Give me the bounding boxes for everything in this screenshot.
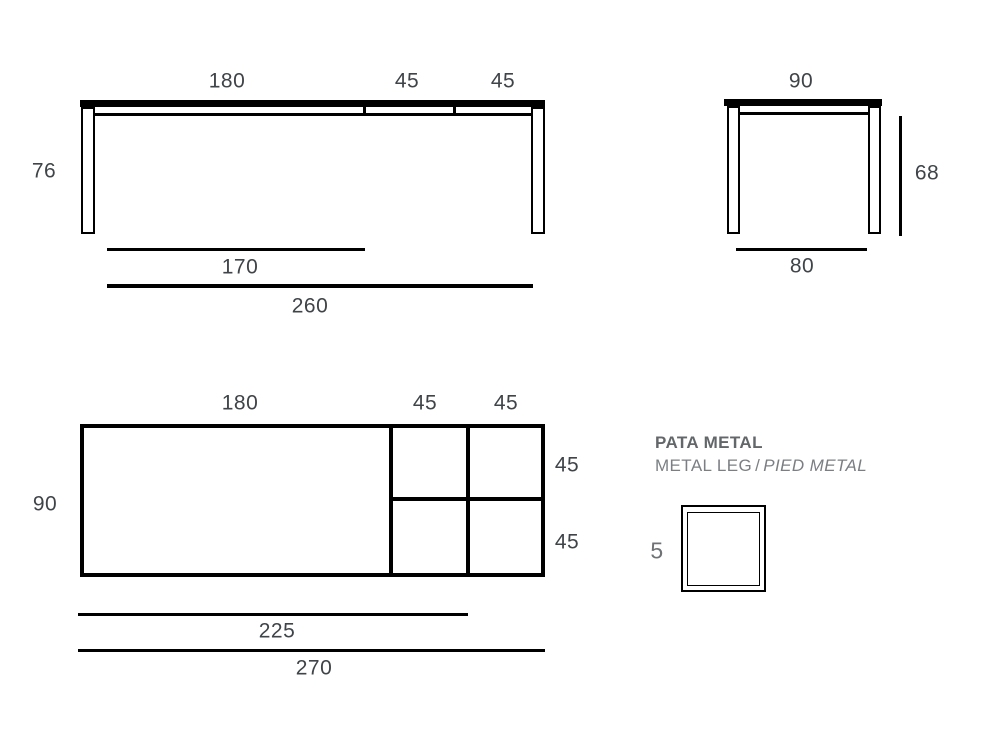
plan-dim-line-225	[78, 613, 468, 616]
side-height-dim-68: 68	[915, 163, 939, 184]
front-top-dim-45-second: 45	[491, 71, 515, 92]
plan-dim-label-225: 225	[259, 621, 296, 642]
front-top-dim-180: 180	[209, 71, 246, 92]
front-dim-label-260: 260	[292, 296, 329, 317]
leg-cross-section-inner	[687, 512, 760, 586]
front-dim-line-170	[107, 248, 365, 251]
side-right-leg	[868, 106, 881, 234]
plan-dim-line-270	[78, 649, 545, 652]
leg-detail-title: PATA METAL	[655, 434, 763, 451]
plan-top-dim-180: 180	[222, 393, 259, 414]
side-top-dim-90: 90	[789, 71, 813, 92]
leg-detail-subtitle: METAL LEG/PIED METAL	[655, 457, 867, 474]
plan-top-dim-45-first: 45	[413, 393, 437, 414]
front-left-leg	[81, 107, 95, 234]
plan-depth-dim-90: 90	[33, 494, 57, 515]
front-dim-line-260	[107, 284, 533, 288]
plan-right-dim-45-second: 45	[555, 532, 579, 553]
front-tabletop-bar	[80, 100, 545, 107]
leg-detail-label-en: METAL LEG	[655, 456, 752, 475]
plan-dim-label-270: 270	[296, 658, 333, 679]
front-dim-label-170: 170	[222, 257, 259, 278]
plan-top-dim-45-second: 45	[494, 393, 518, 414]
side-apron-line	[740, 112, 869, 115]
front-height-dim-76: 76	[32, 161, 56, 182]
technical-drawing-page: 180 45 45 76 170 260 90 68 80 180 45 45	[0, 0, 1000, 750]
leg-detail-separator: /	[755, 456, 760, 475]
side-height-dim-line	[899, 116, 902, 236]
side-dim-label-80: 80	[790, 256, 814, 277]
leg-detail-label-fr: PIED METAL	[763, 456, 867, 475]
side-left-leg	[727, 106, 740, 234]
front-top-dim-45-first: 45	[395, 71, 419, 92]
side-dim-line-80	[736, 248, 867, 251]
front-extension-divider-2	[453, 107, 456, 116]
front-extension-divider-1	[363, 107, 366, 116]
plan-horizontal-divider	[389, 497, 545, 501]
side-tabletop-bar	[724, 99, 882, 106]
front-apron-line	[95, 113, 531, 116]
leg-thickness-dim-5: 5	[650, 540, 663, 563]
front-right-leg	[531, 107, 545, 234]
plan-right-dim-45-first: 45	[555, 455, 579, 476]
